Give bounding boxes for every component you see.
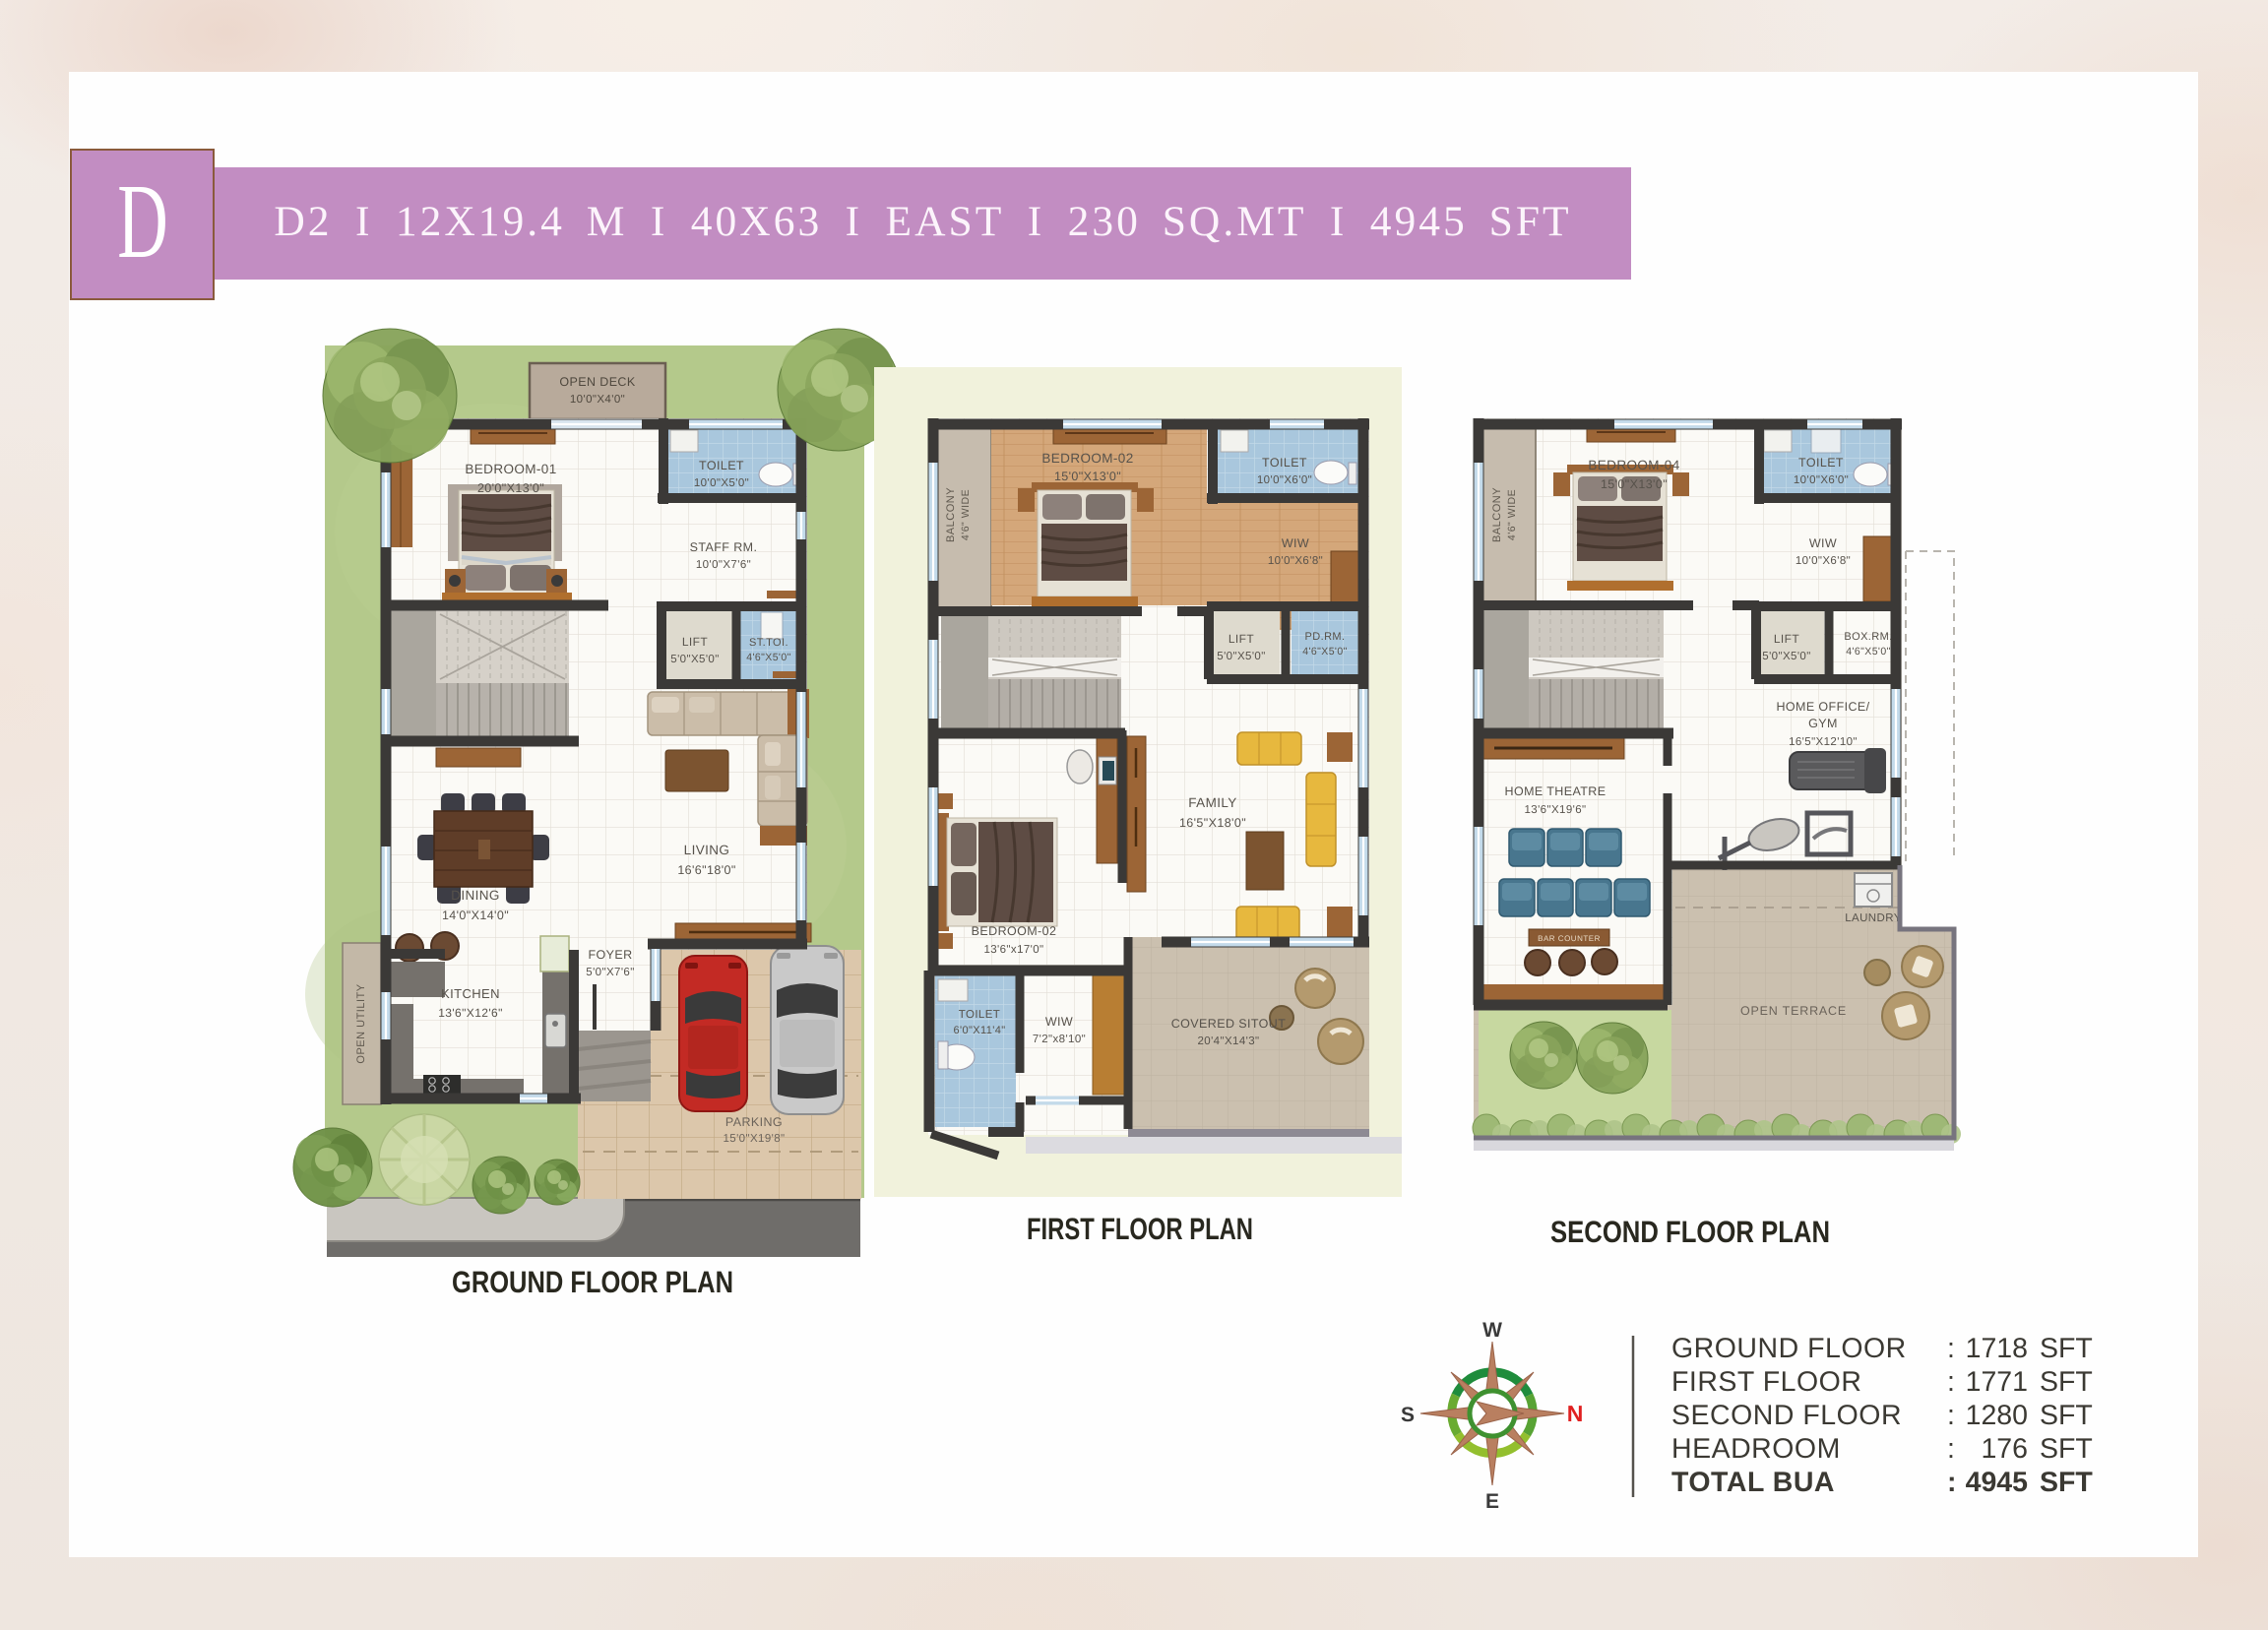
svg-text:10'0"X4'0": 10'0"X4'0": [570, 394, 625, 406]
svg-text:SFT: SFT: [2040, 1366, 2093, 1398]
svg-text::: :: [1947, 1467, 1957, 1498]
svg-text:HOME THEATRE: HOME THEATRE: [1505, 784, 1606, 798]
svg-text:4945: 4945: [1966, 1467, 2029, 1498]
svg-text:OPEN UTILITY: OPEN UTILITY: [355, 983, 367, 1063]
svg-text:4'6" WIDE: 4'6" WIDE: [1506, 489, 1518, 540]
svg-text:10'0"X6'0": 10'0"X6'0": [1794, 474, 1849, 486]
svg-text::: :: [1947, 1400, 1955, 1431]
svg-text:10'0"X5'0": 10'0"X5'0": [694, 477, 749, 489]
svg-text:4'6"X5'0": 4'6"X5'0": [1846, 646, 1890, 658]
svg-text:STAFF RM.: STAFF RM.: [690, 540, 758, 554]
svg-text:1280: 1280: [1966, 1400, 2028, 1431]
svg-text:W: W: [1482, 1319, 1502, 1342]
svg-text:E: E: [1485, 1490, 1499, 1513]
svg-text:16'5"X18'0": 16'5"X18'0": [1179, 816, 1246, 830]
svg-text:FOYER: FOYER: [588, 948, 632, 962]
svg-text:10'0"X6'8": 10'0"X6'8": [1795, 555, 1851, 567]
svg-text:WIW: WIW: [1809, 536, 1837, 550]
svg-text:COVERED SITOUT: COVERED SITOUT: [1171, 1017, 1287, 1031]
svg-text:LIFT: LIFT: [682, 635, 709, 649]
svg-text:16'5"X12'10": 16'5"X12'10": [1789, 736, 1858, 748]
svg-text:SECOND FLOOR PLAN: SECOND FLOOR PLAN: [1550, 1215, 1830, 1249]
svg-text:13'6"x17'0": 13'6"x17'0": [983, 944, 1043, 956]
svg-text:4'6" WIDE: 4'6" WIDE: [960, 489, 972, 540]
svg-text:LIVING: LIVING: [684, 843, 730, 857]
svg-text:10'0"X7'6": 10'0"X7'6": [696, 559, 751, 571]
svg-text:KITCHEN: KITCHEN: [441, 986, 500, 1001]
svg-text::: :: [1947, 1366, 1955, 1398]
svg-text:5'0"X7'6": 5'0"X7'6": [586, 967, 634, 978]
svg-text:20'4"X14'3": 20'4"X14'3": [1197, 1035, 1259, 1047]
svg-text:DINING: DINING: [451, 888, 500, 903]
svg-text:4'6"X5'0": 4'6"X5'0": [746, 652, 790, 663]
svg-text:FIRST FLOOR PLAN: FIRST FLOOR PLAN: [1027, 1212, 1253, 1246]
svg-text:GROUND FLOOR PLAN: GROUND FLOOR PLAN: [452, 1265, 733, 1299]
svg-text:BALCONY: BALCONY: [1491, 487, 1503, 542]
svg-text:BAR COUNTER: BAR COUNTER: [1538, 934, 1601, 943]
svg-text:BEDROOM-04: BEDROOM-04: [1588, 458, 1679, 472]
svg-text:WIW: WIW: [1282, 536, 1309, 550]
svg-text:176: 176: [1981, 1433, 2028, 1465]
svg-text:SFT: SFT: [2040, 1333, 2093, 1364]
svg-text:BEDROOM-02: BEDROOM-02: [972, 924, 1057, 938]
svg-text:6'0"X11'4": 6'0"X11'4": [953, 1025, 1005, 1036]
svg-text:13'6"X19'6": 13'6"X19'6": [1524, 804, 1586, 816]
svg-text:LIFT: LIFT: [1774, 632, 1800, 646]
svg-text:OPEN TERRACE: OPEN TERRACE: [1740, 1004, 1847, 1018]
svg-text:10'0"X6'0": 10'0"X6'0": [1257, 474, 1312, 486]
svg-text:5'0"X5'0": 5'0"X5'0": [1762, 651, 1810, 662]
svg-text:TOILET: TOILET: [699, 459, 744, 472]
svg-text::: :: [1947, 1433, 1955, 1465]
svg-text:PARKING: PARKING: [725, 1115, 783, 1129]
svg-text:TOILET: TOILET: [1798, 456, 1844, 470]
svg-text:SECOND FLOOR: SECOND FLOOR: [1671, 1400, 1902, 1431]
svg-text:BEDROOM-02: BEDROOM-02: [1041, 451, 1133, 466]
svg-text:13'6"X12'6": 13'6"X12'6": [438, 1006, 503, 1020]
svg-text:5'0"X5'0": 5'0"X5'0": [670, 654, 719, 665]
svg-text:S: S: [1401, 1404, 1415, 1426]
svg-text:1718: 1718: [1966, 1333, 2028, 1364]
svg-text:ST.TOI.: ST.TOI.: [749, 637, 788, 649]
svg-text:BOX.RM.: BOX.RM.: [1844, 631, 1892, 643]
svg-text:FAMILY: FAMILY: [1188, 795, 1236, 810]
svg-text:GYM: GYM: [1808, 717, 1838, 730]
svg-text:10'0"X6'8": 10'0"X6'8": [1268, 555, 1323, 567]
svg-text:20'0"X13'0": 20'0"X13'0": [477, 481, 544, 495]
svg-text:SFT: SFT: [2040, 1400, 2093, 1431]
svg-text:7'2"x8'10": 7'2"x8'10": [1033, 1034, 1086, 1045]
svg-text:PD.RM.: PD.RM.: [1305, 631, 1346, 643]
svg-text:SFT: SFT: [2040, 1433, 2093, 1465]
svg-text:FIRST FLOOR: FIRST FLOOR: [1671, 1366, 1861, 1398]
svg-text:SFT: SFT: [2040, 1467, 2093, 1498]
svg-text:TOTAL BUA: TOTAL BUA: [1671, 1467, 1835, 1498]
svg-text:HOME OFFICE/: HOME OFFICE/: [1776, 700, 1869, 714]
svg-text:15'0"X13'0": 15'0"X13'0": [1601, 477, 1668, 491]
svg-text:OPEN DECK: OPEN DECK: [559, 375, 635, 389]
svg-text:16'6"18'0": 16'6"18'0": [677, 863, 735, 877]
svg-text:BALCONY: BALCONY: [945, 487, 957, 542]
svg-text:N: N: [1567, 1401, 1584, 1426]
svg-text:4'6"X5'0": 4'6"X5'0": [1302, 646, 1347, 658]
svg-text:WIW: WIW: [1045, 1015, 1073, 1029]
svg-text:LIFT: LIFT: [1228, 632, 1255, 646]
svg-text:BEDROOM-01: BEDROOM-01: [465, 462, 556, 476]
svg-text:TOILET: TOILET: [1262, 456, 1307, 470]
svg-text:15'0"X19'8": 15'0"X19'8": [723, 1133, 785, 1145]
svg-text:LAUNDRY: LAUNDRY: [1845, 912, 1902, 924]
svg-text:15'0"X13'0": 15'0"X13'0": [1054, 470, 1121, 483]
svg-text:14'0"X14'0": 14'0"X14'0": [442, 909, 509, 922]
svg-text::: :: [1947, 1333, 1955, 1364]
svg-text:TOILET: TOILET: [959, 1009, 1000, 1021]
svg-text:GROUND FLOOR: GROUND FLOOR: [1671, 1333, 1907, 1364]
svg-text:5'0"X5'0": 5'0"X5'0": [1217, 651, 1265, 662]
svg-text:HEADROOM: HEADROOM: [1671, 1433, 1841, 1465]
svg-text:1771: 1771: [1966, 1366, 2028, 1398]
